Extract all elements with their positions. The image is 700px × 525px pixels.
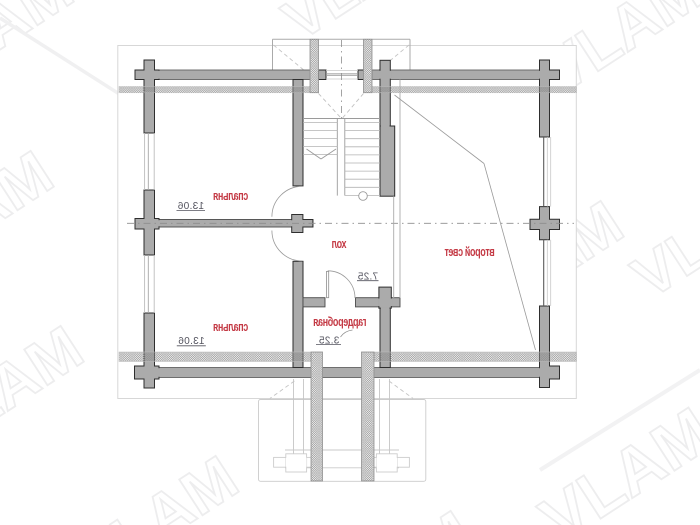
svg-text:VLAM: VLAM — [0, 138, 65, 292]
svg-text:VLAM: VLAM — [0, 313, 95, 467]
svg-text:хол: хол — [332, 238, 347, 252]
svg-text:VLAM: VLAM — [272, 0, 445, 53]
svg-text:гардеробная: гардеробная — [313, 316, 366, 330]
svg-text:3.25: 3.25 — [319, 336, 340, 347]
svg-text:VLAM: VLAM — [527, 393, 700, 525]
svg-text:спальня: спальня — [213, 320, 248, 334]
svg-text:второй свет: второй свет — [444, 246, 495, 260]
svg-text:VLAM: VLAM — [621, 162, 700, 311]
svg-text:VLAM: VLAM — [0, 0, 85, 107]
svg-text:13.06: 13.06 — [178, 336, 205, 347]
svg-text:VLAM: VLAM — [300, 498, 485, 525]
svg-text:спальня: спальня — [213, 190, 248, 204]
svg-text:VLAM: VLAM — [65, 443, 250, 525]
